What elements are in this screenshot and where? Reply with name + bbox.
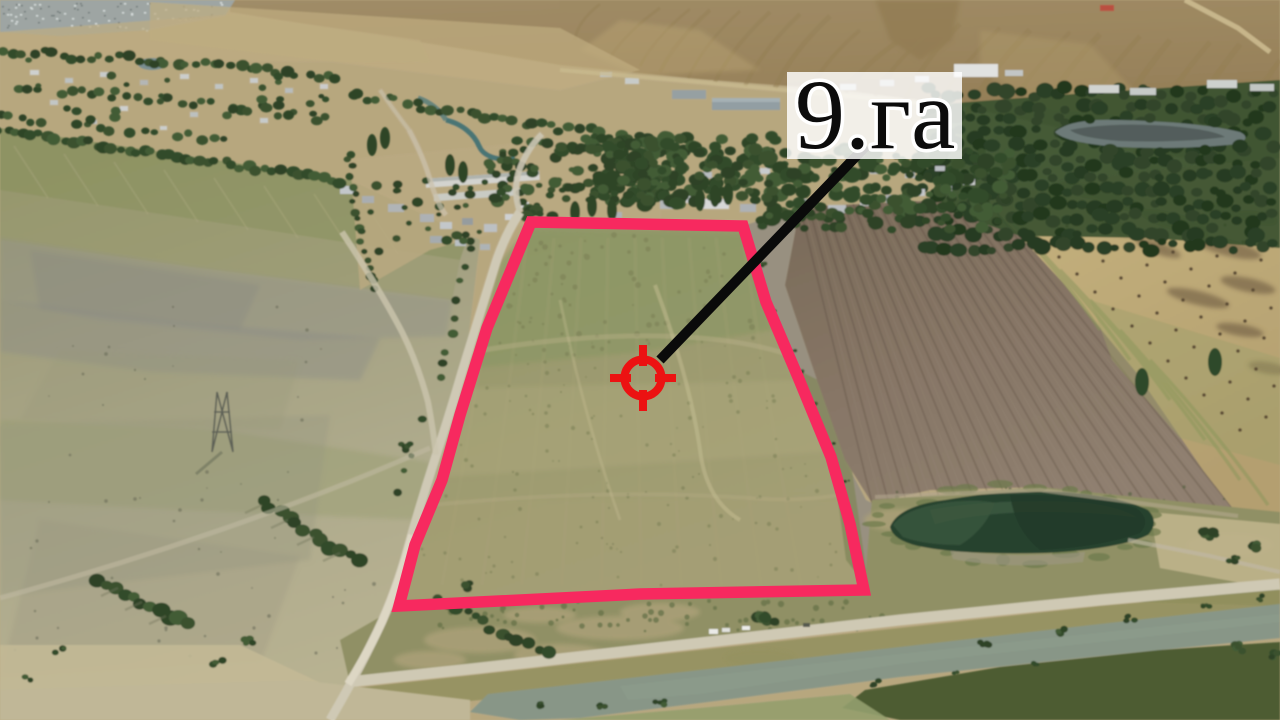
svg-text:9.га: 9.га bbox=[795, 59, 955, 170]
